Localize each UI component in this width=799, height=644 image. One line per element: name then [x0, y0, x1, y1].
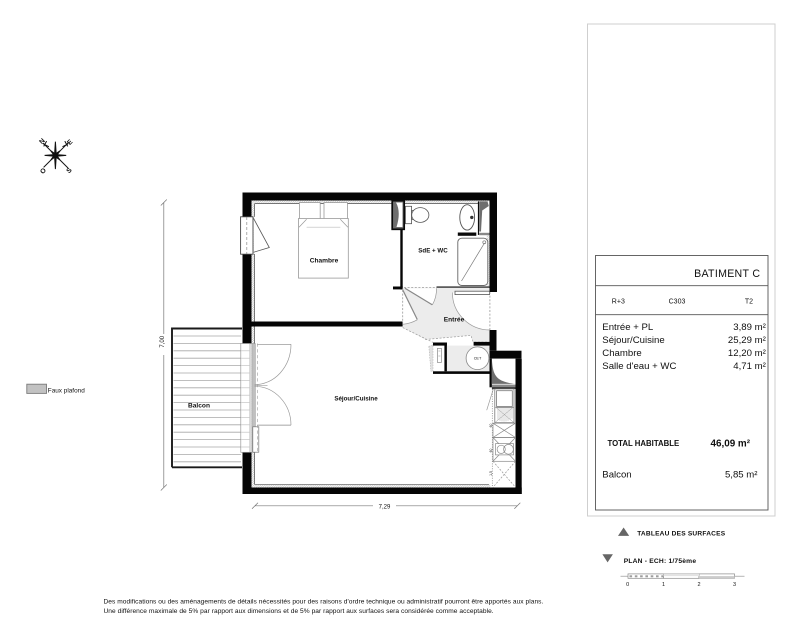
svg-text:Séjour/Cuisine: Séjour/Cuisine — [602, 335, 664, 346]
svg-text:25,29 m²: 25,29 m² — [728, 335, 767, 346]
svg-text:PLAN - ECH: 1/75ème: PLAN - ECH: 1/75ème — [624, 558, 697, 565]
svg-text:3,89 m²: 3,89 m² — [733, 322, 766, 333]
svg-text:5,85 m²: 5,85 m² — [725, 470, 758, 481]
svg-text:Une différence maximale de 5%: Une différence maximale de 5% par rappor… — [104, 608, 494, 615]
svg-text:CET: CET — [474, 357, 482, 361]
svg-text:1: 1 — [662, 582, 665, 588]
svg-text:12,20 m²: 12,20 m² — [728, 348, 767, 359]
svg-text:Entrée: Entrée — [444, 317, 465, 324]
svg-text:T2: T2 — [745, 299, 753, 306]
svg-text:46,09 m²: 46,09 m² — [710, 438, 750, 449]
svg-text:60: 60 — [489, 449, 493, 453]
svg-text:TABLEAU DES SURFACES: TABLEAU DES SURFACES — [637, 531, 726, 538]
svg-text:3: 3 — [733, 582, 736, 588]
svg-text:Chambre: Chambre — [310, 258, 339, 265]
svg-text:Entrée + PL: Entrée + PL — [602, 322, 654, 333]
svg-text:1,5: 1,5 — [489, 471, 493, 476]
svg-text:60: 60 — [489, 424, 493, 428]
svg-text:Balcon: Balcon — [602, 470, 631, 481]
svg-text:BATIMENT C: BATIMENT C — [694, 268, 760, 280]
svg-text:7,29: 7,29 — [379, 504, 391, 510]
svg-text:TOTAL HABITABLE: TOTAL HABITABLE — [608, 439, 680, 448]
svg-text:Séjour/Cuisine: Séjour/Cuisine — [334, 396, 378, 403]
svg-text:Salle d'eau + WC: Salle d'eau + WC — [602, 361, 676, 372]
svg-text:7,00: 7,00 — [160, 335, 166, 347]
svg-text:2: 2 — [697, 582, 700, 588]
svg-text:Balcon: Balcon — [188, 403, 210, 410]
svg-text:SdE + WC: SdE + WC — [418, 248, 448, 255]
svg-text:C303: C303 — [669, 299, 686, 306]
svg-text:Chambre: Chambre — [602, 348, 641, 359]
svg-text:Faux plafond: Faux plafond — [48, 387, 85, 394]
svg-text:4,71 m²: 4,71 m² — [733, 361, 766, 372]
svg-text:0: 0 — [626, 582, 629, 588]
svg-text:R+3: R+3 — [612, 299, 625, 306]
svg-text:Des modifications ou des aména: Des modifications ou des aménagements de… — [104, 598, 544, 605]
